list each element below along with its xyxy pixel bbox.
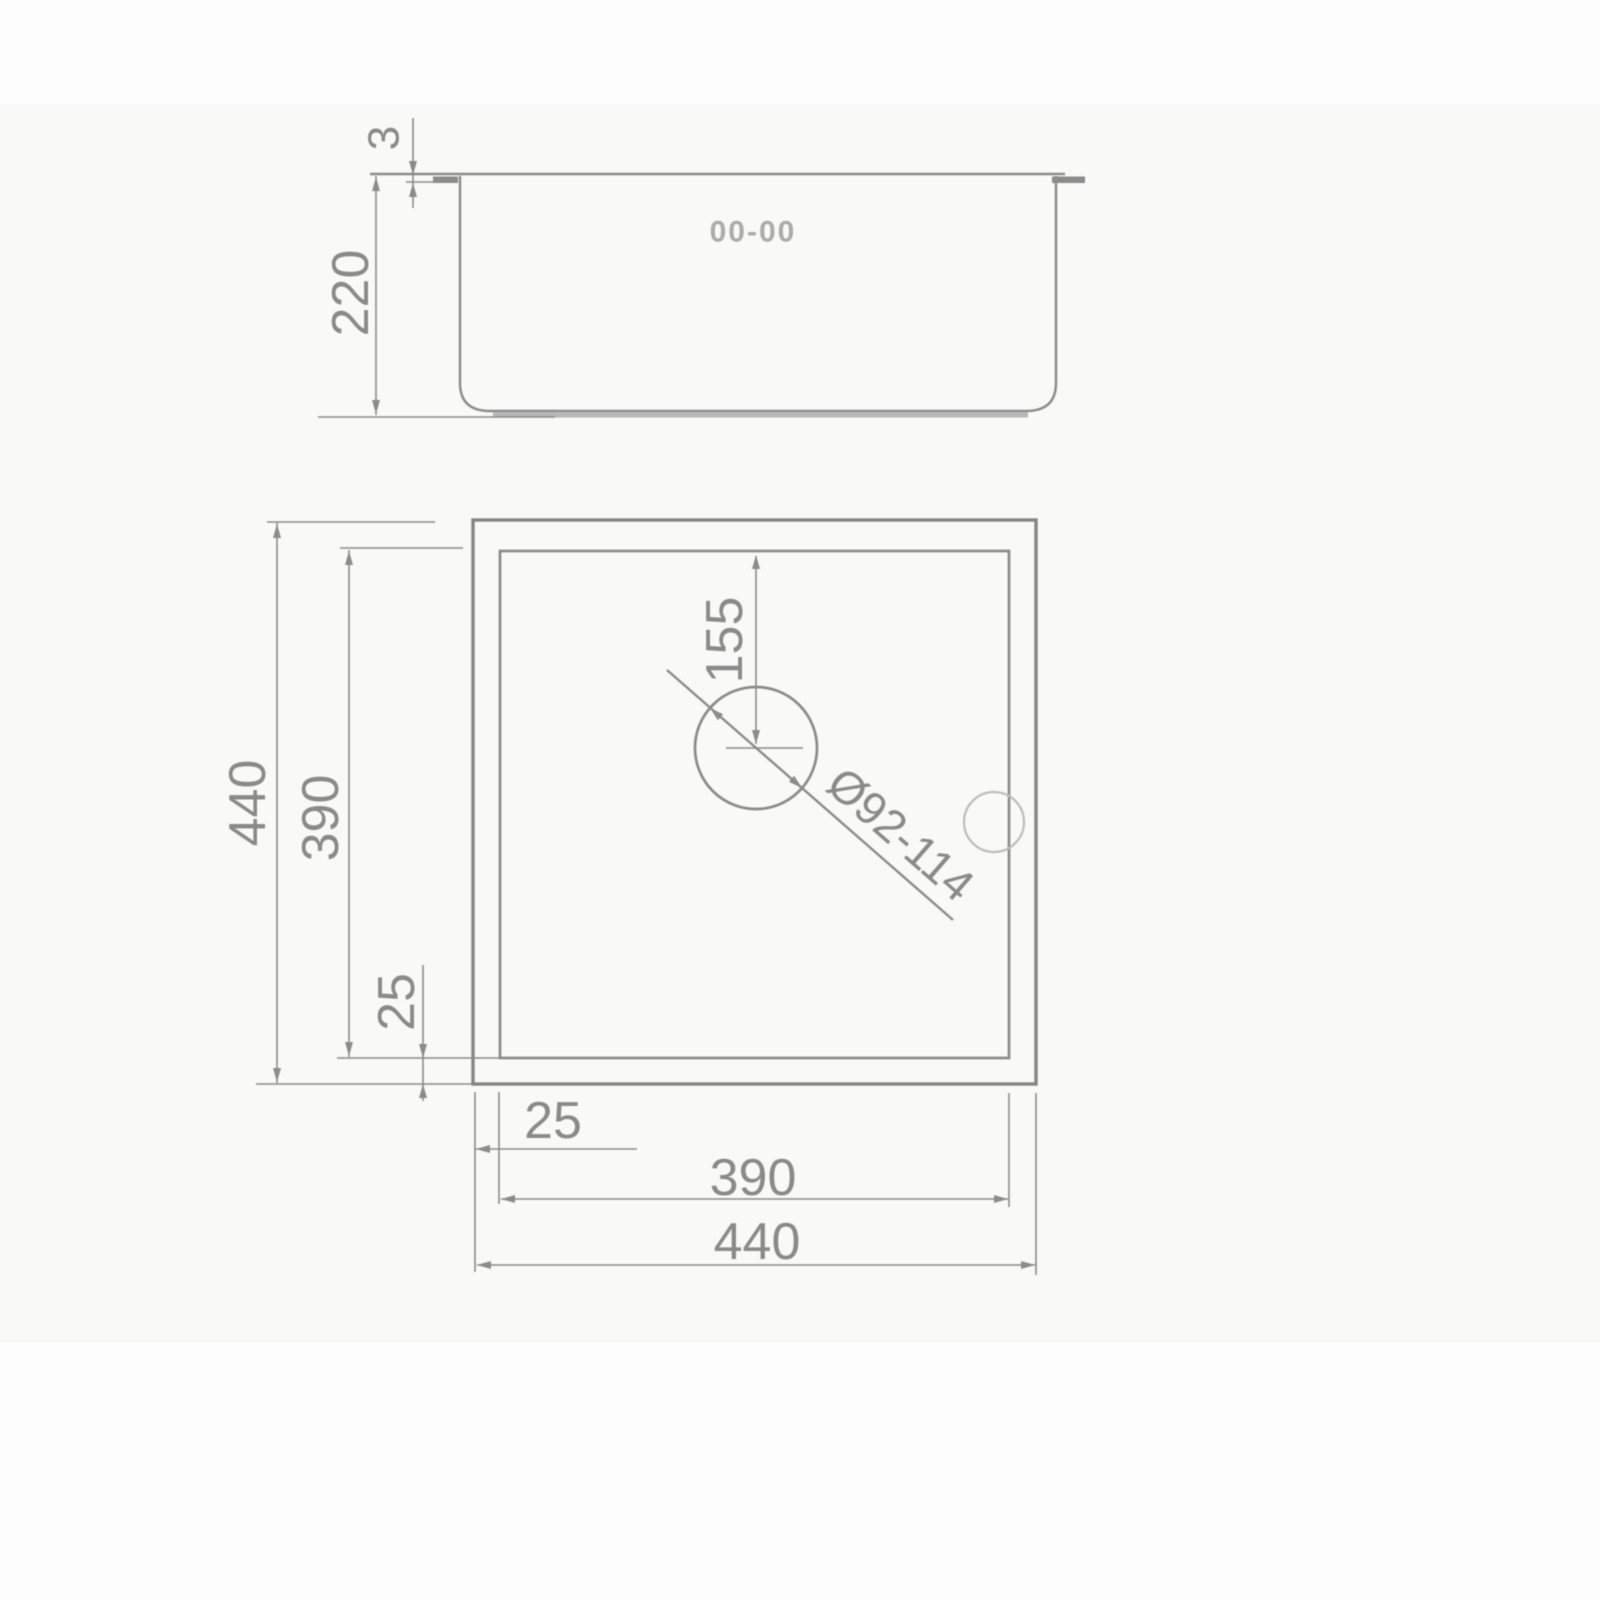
background-band (0, 104, 1600, 1342)
dim-text-bottom-overall: 440 (714, 1213, 801, 1271)
technical-drawing-page: 00-00 3 220 (0, 0, 1600, 1600)
brand-logo: 00-00 (710, 216, 797, 249)
dim-text-rim-thickness: 3 (359, 126, 408, 150)
dim-text-depth: 220 (322, 250, 380, 337)
dim-text-left-offset: 25 (368, 973, 426, 1031)
dim-text-bottom-inner: 390 (710, 1149, 797, 1207)
left-mount-lip (433, 177, 458, 184)
dim-text-left-overall: 440 (219, 760, 277, 847)
dim-text-bottom-offset: 25 (524, 1092, 582, 1150)
sink-dimension-drawing: 00-00 3 220 (0, 0, 1600, 1600)
dim-text-drain-offset: 155 (696, 597, 754, 684)
dim-text-left-inner: 390 (292, 775, 350, 862)
